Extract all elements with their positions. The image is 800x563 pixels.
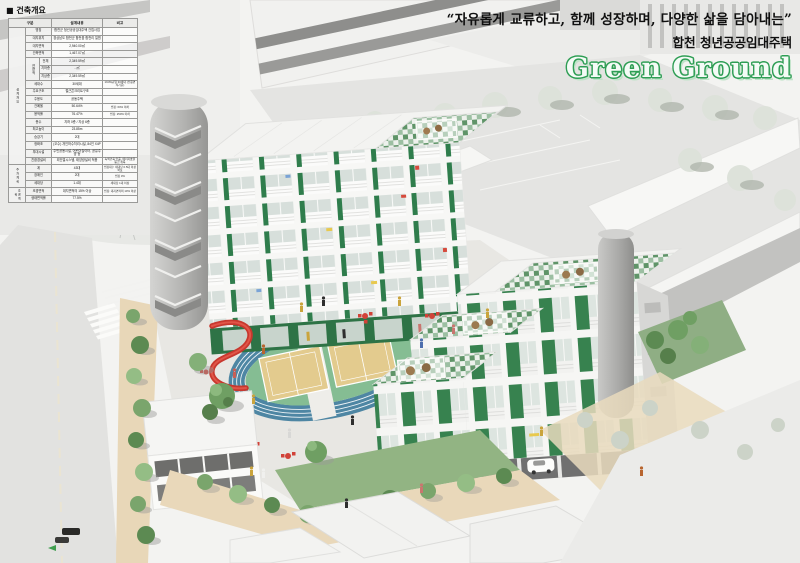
table-row: 생태면적률77.5% xyxy=(9,195,138,203)
table-row: 대지위치경상남도 합천군 합천읍 합천리 일원 xyxy=(9,35,138,43)
table-row: 최고높이23.85m xyxy=(9,126,138,134)
table-row: 설계개요명칭합천군 청년공공임대주택 건립사업 xyxy=(9,28,138,36)
table-row: 대지면적2,940.00㎡ xyxy=(9,43,138,51)
table-row: 조경계획조경면적대지면적의 15% 이상법정: 대지면적의 10% 이상 xyxy=(9,188,138,196)
col-remarks: 비고 xyxy=(102,19,137,28)
table-row: 장애인2대법정 3% xyxy=(9,173,138,181)
col-category: 구분 xyxy=(9,19,52,28)
table-row: 친환경설비외단열시스템, 태양광설비 적용녹색건축 인증, 에너지효율등급 취득 xyxy=(9,157,138,165)
col-design: 설계내용 xyxy=(52,19,103,28)
table-row: 연면적전체2,349.59㎡ xyxy=(9,58,138,66)
presentation-board: ■ 건축개요 구분 설계내용 비고 설계개요명칭합천군 청년공공임대주택 건립사… xyxy=(0,0,800,563)
table-row: 세대당1.4대세대당 1대 이상 xyxy=(9,180,138,188)
project-name: 합천 청년공공임대주택 xyxy=(447,32,792,51)
overview-panel: ■ 건축개요 구분 설계내용 비고 설계개요명칭합천군 청년공공임대주택 건립사… xyxy=(6,5,140,203)
slogan-text: “자유롭게 교류하고, 함께 성장하며, 다양한 삶을 담아내는” xyxy=(447,8,792,28)
stair-tower xyxy=(150,94,208,330)
overview-table-body: 설계개요명칭합천군 청년공공임대주택 건립사업대지위치경상남도 합천군 합천읍 … xyxy=(9,28,138,203)
table-row: 건폐율50.64%법정: 60% 이하 xyxy=(9,103,138,111)
table-row: 정화조(오수) 개인하수처리시설, 84인 X4P xyxy=(9,141,138,149)
table-row: 주용도공동주택 xyxy=(9,96,138,104)
brand-logotype: Green Ground xyxy=(566,53,792,84)
building-overview-table: 구분 설계내용 비고 설계개요명칭합천군 청년공공임대주택 건립사업대지위치경상… xyxy=(8,18,138,203)
table-row: 주차계획계43대법정대수 세대당 0.5대 이상 확보 xyxy=(9,165,138,173)
table-row: 주요구조철근콘크리트구조 xyxy=(9,88,138,96)
table-row: 세대수30세대19.80㎡형 30세대 (전용면적기준) xyxy=(9,81,138,89)
table-row: 층수지하 0층 / 지상 6층 xyxy=(9,119,138,127)
table-row: 승강기2대 xyxy=(9,134,138,142)
facade xyxy=(198,143,471,329)
overview-heading: ■ 건축개요 xyxy=(6,5,140,16)
title-block: “자유롭게 교류하고, 함께 성장하며, 다양한 삶을 담아내는” 합천 청년공… xyxy=(447,8,792,84)
table-row: 건축면적1,467.07㎡ xyxy=(9,50,138,58)
table-row: 용적률76.47%법정: 250% 이하 xyxy=(9,111,138,119)
